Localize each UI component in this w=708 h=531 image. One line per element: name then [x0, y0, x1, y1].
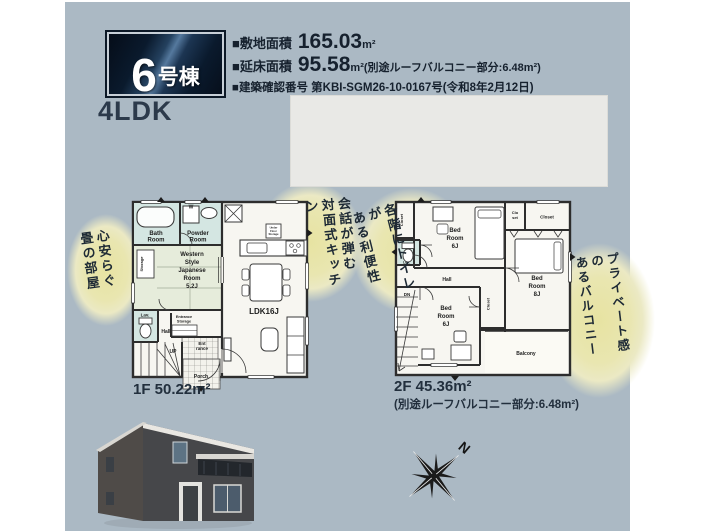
svg-text:rance: rance: [196, 346, 209, 351]
floor-area-2f-value: 2F 45.36m²: [394, 378, 472, 395]
svg-text:Lav.: Lav.: [141, 313, 150, 318]
svg-text:5.2J: 5.2J: [186, 284, 198, 290]
svg-text:Balcony: Balcony: [516, 351, 536, 357]
floor-area-1f: 1F 50.22m²: [133, 381, 211, 398]
entrance-storage-box: [172, 325, 197, 336]
house-rendering: [86, 397, 264, 531]
svg-text:Powder: Powder: [187, 231, 209, 237]
compass-rose: N: [398, 430, 488, 514]
svg-text:Hall: Hall: [442, 277, 452, 283]
svg-text:Closet: Closet: [486, 297, 491, 310]
refrigerator-space: [225, 205, 242, 222]
svg-text:Bed: Bed: [440, 306, 452, 312]
svg-text:6J: 6J: [443, 322, 450, 328]
property-specs: ■敷地面積 165.03 m² ■延床面積 95.58 m² (別途ルーフバルコ…: [232, 30, 541, 95]
svg-text:Room: Room: [447, 236, 464, 242]
sink-icon: [201, 208, 217, 219]
kitchen-counter: [240, 240, 307, 256]
bed3-icon: [515, 239, 563, 273]
balcony-soffit: [196, 454, 254, 459]
layout-type-label: 4LDK: [98, 96, 173, 127]
bathtub-icon: [137, 207, 174, 227]
side-window-2: [106, 492, 114, 505]
svg-text:Japanese: Japanese: [178, 268, 206, 274]
front-door: [183, 486, 198, 521]
badge-number: 6: [131, 54, 156, 96]
upper-window: [173, 442, 187, 463]
floor-plan-2f: Closet Lav. Bed Room 6J Clo set Closet B…: [391, 197, 576, 383]
svg-text:8J: 8J: [534, 292, 541, 298]
svg-text:Bath: Bath: [149, 231, 163, 237]
svg-text:Room: Room: [190, 238, 207, 244]
low-table: [261, 328, 278, 351]
svg-text:Room: Room: [529, 284, 546, 290]
spec-site-area: ■敷地面積 165.03 m²: [232, 30, 541, 53]
svg-text:LDK16J: LDK16J: [249, 307, 279, 316]
svg-text:Entrance: Entrance: [176, 315, 192, 319]
spec-floor-area: ■延床面積 95.58 m² (別途ルーフバルコニー部分:6.48m²): [232, 53, 541, 76]
spec-building-confirmation: ■建築確認番号 第KBI-SGM26-10-0167号(令和8年2月12日): [232, 79, 541, 95]
toilet-icon: [139, 318, 152, 338]
redacted-area: [290, 95, 608, 187]
svg-text:6J: 6J: [452, 244, 459, 250]
svg-text:Storage: Storage: [177, 320, 191, 324]
svg-text:set: set: [512, 215, 518, 220]
badge-suffix: 号棟: [158, 61, 200, 96]
side-window-1: [106, 457, 114, 472]
svg-text:Room: Room: [184, 276, 201, 282]
desk1-icon: [433, 207, 453, 221]
svg-text:Room: Room: [438, 314, 455, 320]
svg-text:Closet: Closet: [540, 215, 554, 220]
svg-text:UP: UP: [170, 349, 178, 355]
svg-text:Bed: Bed: [531, 276, 543, 282]
floor-area-2f-note: (別途ルーフバルコニー部分:6.48m²): [394, 396, 579, 412]
svg-text:Room: Room: [148, 238, 165, 244]
svg-text:Porch: Porch: [194, 374, 208, 380]
svg-text:Hall: Hall: [161, 329, 171, 335]
floor-plan-1f: Bath Room Powder Room W Western Style Ja…: [128, 197, 313, 393]
unit-number-badge: 6 号棟: [105, 30, 226, 98]
compass-north-label: N: [456, 438, 474, 457]
svg-text:Storage: Storage: [268, 232, 279, 236]
svg-text:Bed: Bed: [449, 228, 461, 234]
svg-text:W: W: [189, 205, 194, 211]
flyer-page: 6 号棟 ■敷地面積 165.03 m² ■延床面積 95.58 m² (別途ル…: [0, 0, 708, 531]
svg-text:Style: Style: [185, 260, 200, 266]
floor-area-2f: 2F 45.36m² (別途ルーフバルコニー部分:6.48m²): [394, 378, 579, 412]
svg-text:Western: Western: [180, 252, 204, 258]
svg-text:Storage: Storage: [139, 256, 144, 272]
